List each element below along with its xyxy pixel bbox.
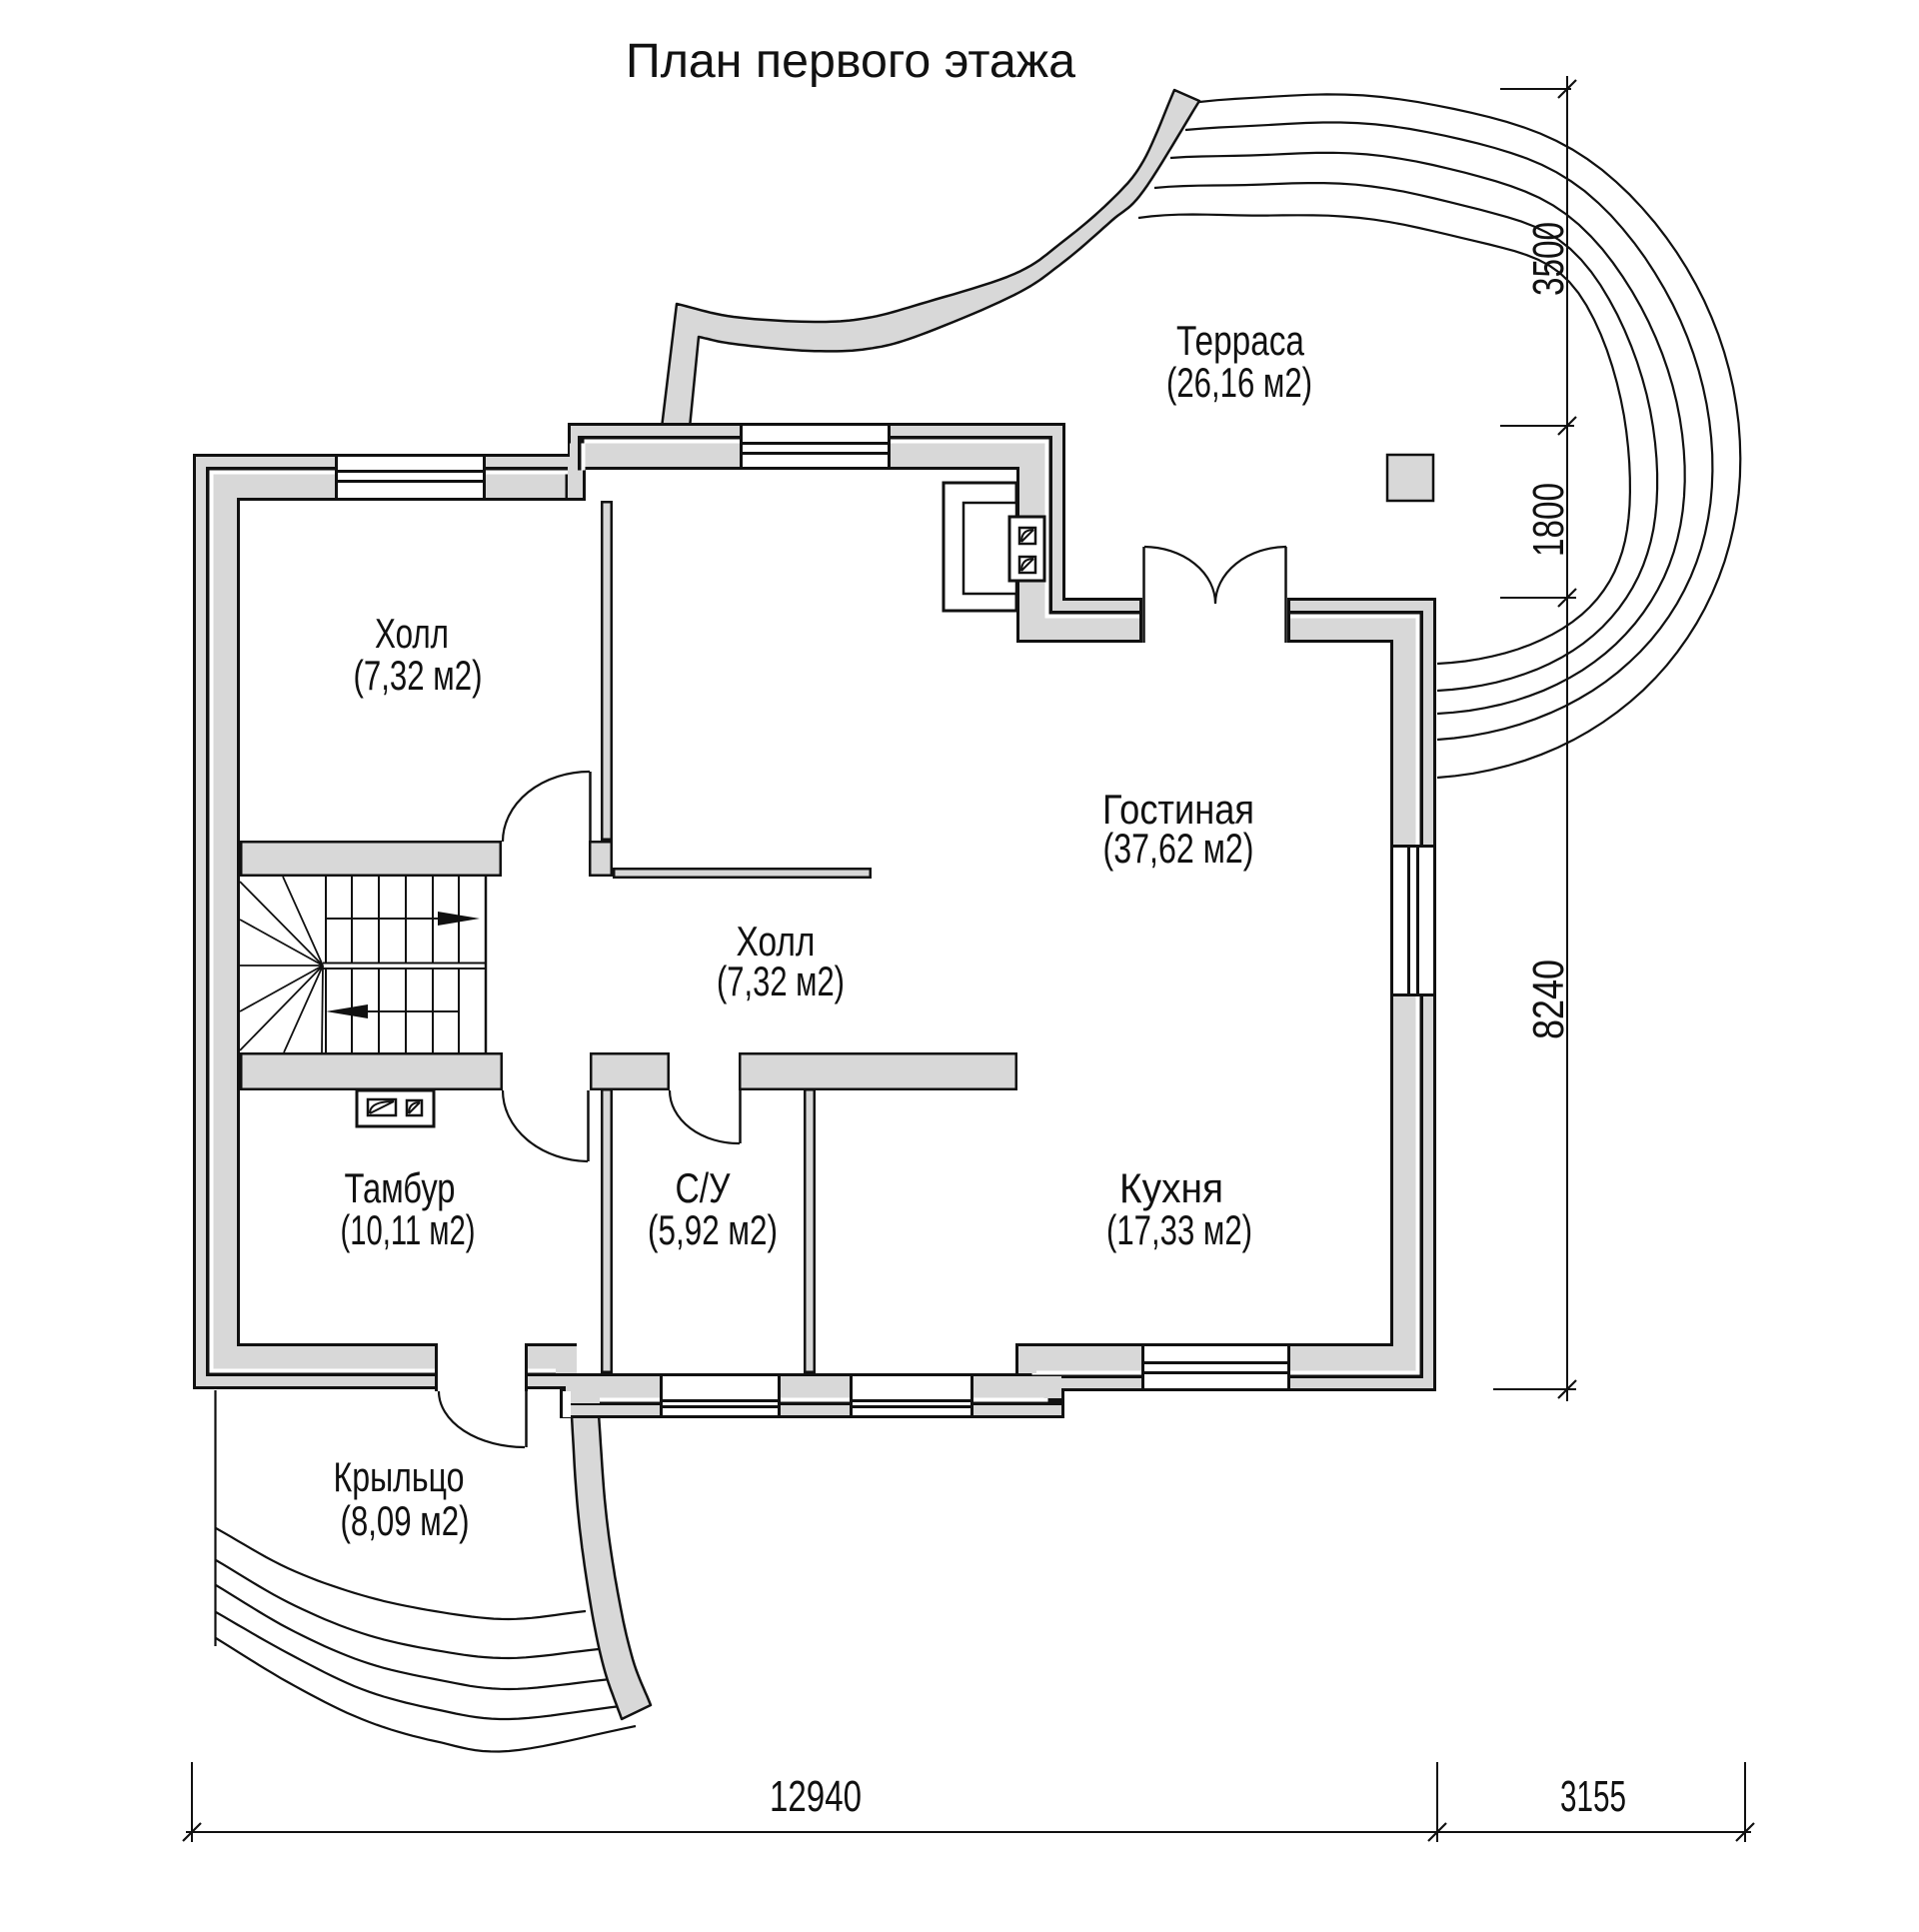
svg-text:12940: 12940 xyxy=(770,1772,862,1821)
svg-text:Крыльцо: Крыльцо xyxy=(334,1453,465,1500)
svg-text:Тамбур: Тамбур xyxy=(345,1164,456,1211)
svg-text:(10,11 м2): (10,11 м2) xyxy=(341,1206,476,1253)
svg-text:(8,09 м2): (8,09 м2) xyxy=(341,1497,470,1544)
svg-text:Холл: Холл xyxy=(375,610,449,657)
svg-text:С/У: С/У xyxy=(676,1164,731,1211)
svg-text:(26,16 м2): (26,16 м2) xyxy=(1166,359,1312,406)
svg-text:План первого этажа: План первого этажа xyxy=(626,35,1075,88)
svg-text:(37,62 м2): (37,62 м2) xyxy=(1103,825,1254,872)
svg-text:Терраса: Терраса xyxy=(1176,317,1305,364)
svg-text:(7,32 м2): (7,32 м2) xyxy=(717,958,845,1004)
svg-text:(17,33 м2): (17,33 м2) xyxy=(1106,1206,1252,1253)
svg-text:8240: 8240 xyxy=(1524,960,1573,1039)
svg-text:(5,92 м2): (5,92 м2) xyxy=(648,1206,778,1253)
svg-text:3500: 3500 xyxy=(1524,222,1573,296)
svg-text:1800: 1800 xyxy=(1524,483,1573,557)
svg-text:Кухня: Кухня xyxy=(1119,1164,1223,1211)
svg-text:(7,32 м2): (7,32 м2) xyxy=(354,652,483,699)
svg-text:3155: 3155 xyxy=(1560,1772,1626,1821)
